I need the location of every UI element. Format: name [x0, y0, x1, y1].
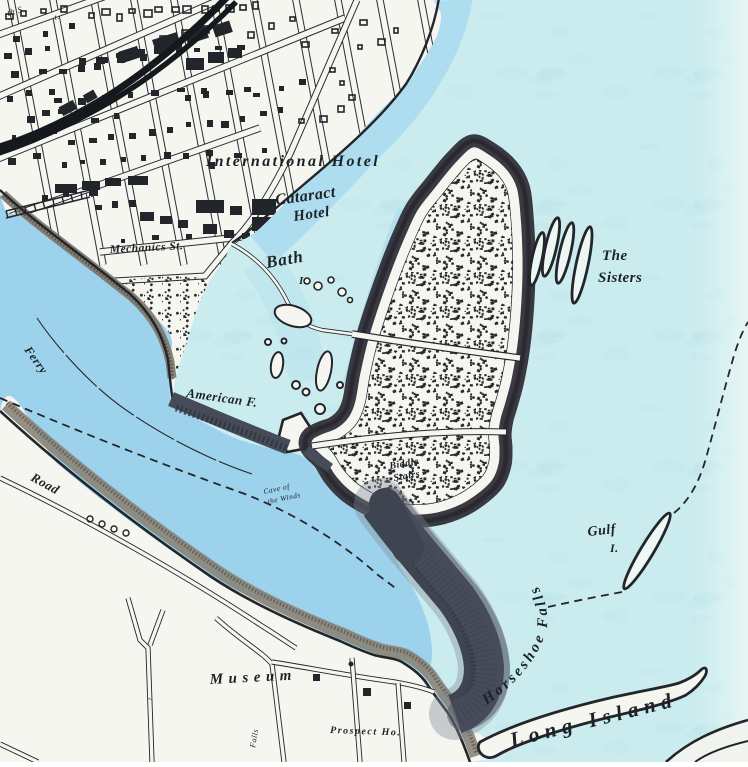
svg-text:I.: I.: [298, 275, 307, 287]
svg-text:International Hotel: International Hotel: [205, 153, 380, 170]
svg-text:Sisters: Sisters: [598, 270, 642, 286]
svg-text:Gulf: Gulf: [587, 522, 618, 540]
svg-text:The: The: [602, 248, 628, 264]
svg-text:I.: I.: [609, 541, 619, 555]
